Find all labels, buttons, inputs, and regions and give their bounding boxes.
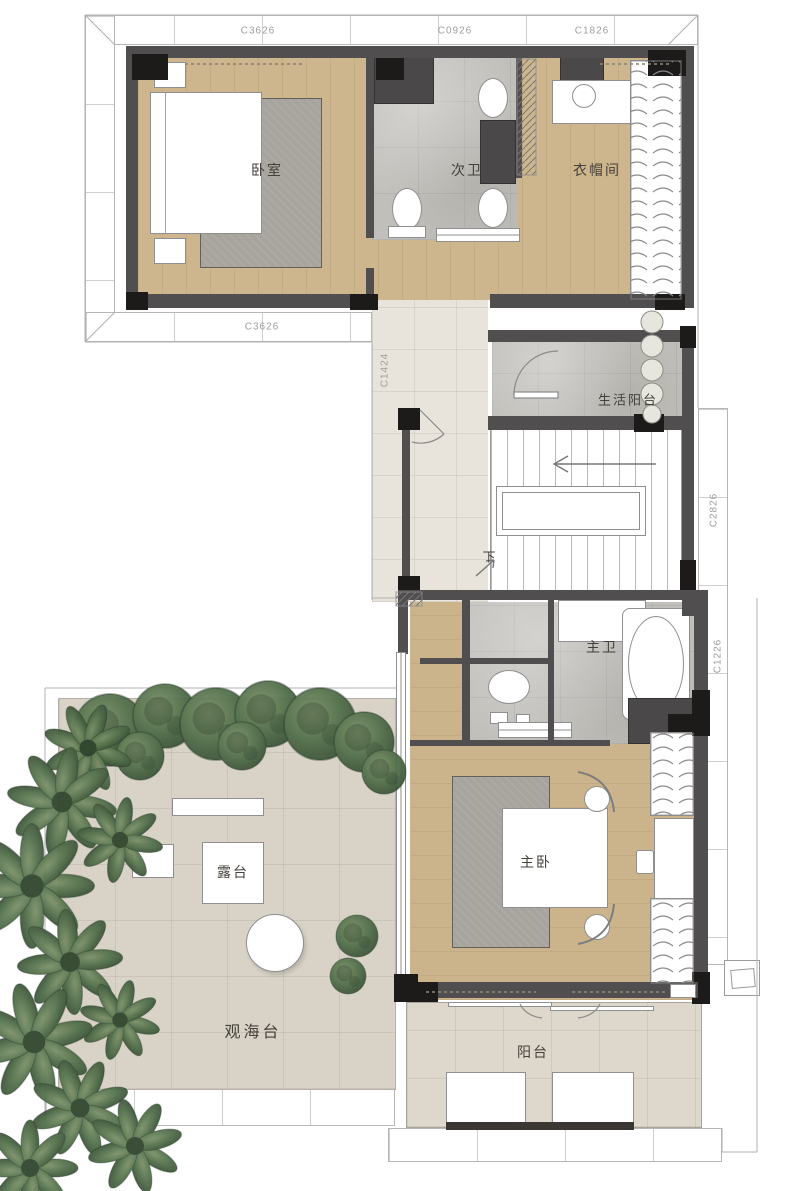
shelf-bath2 [436, 228, 520, 242]
window-tag-top-right: C1826 [575, 26, 609, 37]
wall-segment [488, 330, 682, 342]
room-label-master-bath: 主卫 [586, 637, 618, 657]
lounger-left [446, 1072, 526, 1124]
wall-segment [398, 982, 698, 998]
window-strip-left [396, 652, 406, 976]
window-tag-wing-bottom: C3626 [245, 322, 279, 333]
bench-master-bath [498, 722, 572, 738]
wall-segment [126, 294, 378, 308]
room-label-master-bedroom: 主卧 [520, 852, 552, 872]
room-label-terrace: 露台 [217, 862, 249, 882]
room-label-bedroom2: 卧室 [251, 160, 283, 180]
window-tag-top-mid: C0926 [438, 26, 472, 37]
sliding-door-leaf [550, 1006, 654, 1011]
window-tag-stair-side: C2826 [709, 493, 720, 527]
bed-master [502, 808, 608, 908]
lounger-right [552, 1072, 634, 1124]
ac-unit-inner [730, 968, 756, 989]
sliding-door-leaf [448, 1002, 552, 1007]
column-block [648, 50, 686, 76]
bed-bedroom2 [150, 92, 262, 234]
floor-plan: C3626 C0926 C1826 C3626 C1424 C2826 C122… [0, 0, 800, 1191]
wall-gap-white [670, 984, 696, 998]
wall-segment [398, 598, 408, 654]
column-block [655, 294, 685, 310]
ac-unit-symbol [724, 960, 760, 996]
eave-band-balcony-bottom [388, 1128, 722, 1162]
column-block [126, 292, 148, 310]
wall-segment [126, 46, 692, 58]
wall-segment [548, 598, 554, 744]
dresser-mirror [572, 84, 596, 108]
wall-segment [694, 590, 708, 1002]
room-label-bath2: 次卫 [451, 160, 483, 180]
room-label-cloakroom: 衣帽间 [573, 160, 621, 180]
sink-bath2-upper [478, 78, 508, 118]
window-tag-top-left: C3626 [241, 26, 275, 37]
planter-terrace [132, 844, 174, 878]
room-label-sea-view-deck: 观海台 [224, 1018, 281, 1042]
wall-segment [420, 658, 550, 664]
column-block [350, 294, 378, 310]
column-block [634, 414, 664, 432]
toilet-bath2 [392, 188, 422, 230]
side-table-top [584, 786, 610, 812]
eave-band-left [85, 15, 115, 342]
toilet-master-bath [488, 670, 530, 704]
sink-bath2-lower [478, 188, 508, 228]
column-block [680, 326, 696, 348]
stair-landing-inner [502, 492, 640, 530]
column-block [132, 54, 168, 80]
window-tag-bath-side: C1226 [713, 639, 724, 673]
chair-master [636, 850, 654, 874]
lounger-base-strip [446, 1122, 634, 1130]
wardrobe-master-bottom [650, 898, 694, 984]
cabinet-bath2-mid [480, 120, 516, 184]
table-terrace-round [246, 914, 304, 972]
eave-band-terrace-bottom [45, 1088, 395, 1126]
room-label-balcony: 阳台 [517, 1042, 549, 1062]
wardrobe-master-top [650, 732, 694, 816]
bed-headboard-line [165, 93, 166, 233]
column-block [692, 690, 710, 736]
floor-corridor [372, 300, 488, 602]
wall-segment [410, 740, 610, 746]
wall-segment [516, 58, 522, 178]
column-block [398, 408, 420, 430]
wardrobe-cloakroom [630, 60, 682, 300]
desk-master [654, 818, 694, 900]
bench-terrace-top [172, 798, 264, 816]
wall-segment [402, 430, 410, 578]
wall-segment [462, 598, 470, 744]
wall-segment [126, 46, 138, 308]
wall-segment [682, 46, 694, 308]
room-label-service-balcony: 生活阳台 [598, 390, 658, 409]
toilet-tank-bath2 [388, 226, 426, 238]
wall-segment [366, 58, 374, 238]
column-block [680, 560, 696, 590]
side-table-bottom [584, 914, 610, 940]
eave-band-wing-bottom [85, 312, 372, 342]
stair-down-label: 下 [482, 547, 497, 566]
stair-landing [496, 486, 646, 536]
window-tag-corridor: C1424 [380, 353, 391, 387]
nightstand-bottom [154, 238, 186, 264]
column-block [398, 982, 438, 1002]
